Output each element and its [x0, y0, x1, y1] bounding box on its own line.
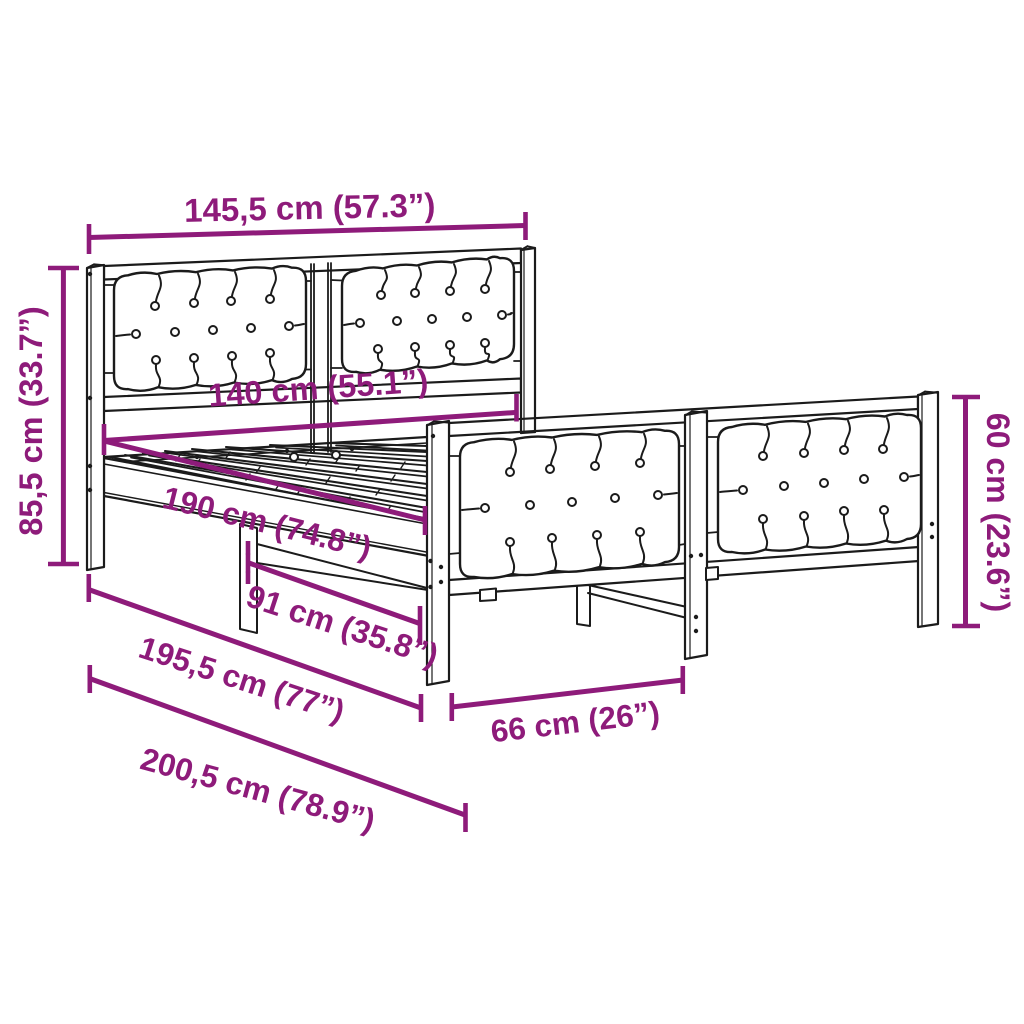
svg-text:145,5 cm (57.3”): 145,5 cm (57.3”) — [184, 186, 436, 229]
svg-text:60 cm (23.6”): 60 cm (23.6”) — [980, 413, 1016, 612]
svg-text:85,5 cm (33.7”): 85,5 cm (33.7”) — [13, 306, 49, 535]
